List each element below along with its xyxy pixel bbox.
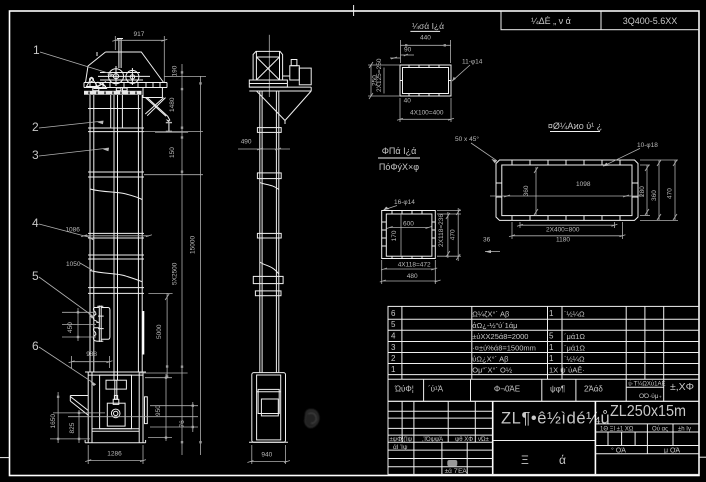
svg-text:±ά 7ΈΆ: ±ά 7ΈΆ (445, 467, 468, 475)
svg-text:1Θ Ξl ±1 ΧΩ: 1Θ Ξl ±1 ΧΩ (600, 427, 634, 433)
svg-text:´½¼Ω: ´½¼Ω (564, 355, 585, 364)
svg-text:440: 440 (420, 35, 431, 42)
svg-text:4X100=400: 4X100=400 (410, 110, 444, 117)
svg-text:ZL250x15m: ZL250x15m (610, 402, 686, 420)
svg-text:1098: 1098 (576, 181, 591, 188)
svg-text:μ ΟΆ: μ ΟΆ (664, 448, 680, 455)
svg-text:2X125=250: 2X125=250 (376, 58, 383, 92)
svg-text:600: 600 (403, 220, 414, 227)
svg-text:50 x 45°: 50 x 45° (455, 135, 479, 143)
svg-text:±,ΧΦ: ±,ΧΦ (670, 381, 694, 393)
svg-text:470: 470 (450, 229, 457, 240)
svg-text:4: 4 (391, 332, 396, 341)
svg-text:825: 825 (69, 422, 76, 433)
svg-text:3Q400-5.6ΧΧ: 3Q400-5.6ΧΧ (623, 16, 678, 26)
svg-text:150: 150 (169, 147, 176, 158)
svg-text:2: 2 (391, 354, 396, 363)
svg-text:¼σά Ι¿ά: ¼σά Ι¿ά (412, 21, 444, 31)
svg-text:1: 1 (549, 354, 554, 363)
svg-text:15000: 15000 (190, 236, 197, 254)
svg-text:5X2500: 5X2500 (172, 262, 179, 285)
svg-text:νΏ±: νΏ± (478, 437, 490, 443)
svg-text:άΙ Ίψ: άΙ Ίψ (393, 443, 408, 451)
svg-text:,ΊΌψψΆ: ,ΊΌψψΆ (422, 437, 443, 443)
svg-text:6: 6 (32, 339, 39, 353)
svg-text:ψφ¶: ψφ¶ (550, 385, 565, 394)
svg-text:Φ¬0ΆΕ: Φ¬0ΆΕ (494, 385, 520, 394)
svg-text:40: 40 (404, 98, 412, 105)
svg-text:ΦΠά Ι¿ά: ΦΠά Ι¿ά (382, 146, 417, 156)
svg-text:917: 917 (134, 31, 145, 38)
svg-text:ΠόΦýΧ×φ: ΠόΦýΧ×φ (379, 162, 419, 172)
svg-text:450: 450 (67, 322, 74, 333)
svg-text:Ομ“´Χ°´ Ο½: Ομ“´Χ°´ Ο½ (472, 366, 513, 375)
svg-text:1086: 1086 (65, 227, 80, 234)
svg-text:1286: 1286 (107, 451, 122, 458)
svg-text:4: 4 (32, 216, 39, 230)
svg-text:±ύΧΧ25ά8=2000: ±ύΧΧ25ά8=2000 (472, 332, 528, 341)
svg-text:10-φ18: 10-φ18 (637, 142, 658, 149)
svg-text:36: 36 (483, 237, 491, 244)
svg-text:470: 470 (667, 188, 674, 199)
svg-text:Ξ: Ξ (521, 453, 529, 467)
svg-text:1Χ ψ´ύΑȆ·: 1Χ ψ´ύΑȆ· (549, 366, 585, 375)
svg-text:940: 940 (261, 452, 272, 459)
svg-text:16-φ14: 16-φ14 (394, 199, 415, 206)
svg-text:280: 280 (639, 186, 646, 197)
svg-text:1: 1 (33, 43, 40, 57)
svg-text:3: 3 (391, 343, 396, 352)
svg-text:ψθ ΧΦ: ψθ ΧΦ (455, 437, 473, 443)
svg-text:´μά1Ω: ´μά1Ω (564, 344, 585, 353)
svg-text:¼ΔĖ „ ν ά: ¼ΔĖ „ ν ά (531, 16, 571, 26)
svg-text:2X400=800: 2X400=800 (546, 227, 580, 234)
svg-text:ZL¶•ê½ìdé¼ů: ZL¶•ê½ìdé¼ů (501, 410, 610, 428)
svg-text:1: 1 (549, 343, 554, 352)
svg-text:360: 360 (651, 190, 658, 201)
svg-text:90: 90 (404, 47, 412, 54)
svg-text:1: 1 (549, 309, 554, 318)
svg-text:5000: 5000 (156, 324, 163, 339)
svg-text:190: 190 (172, 65, 179, 76)
svg-text:1480: 1480 (169, 97, 176, 112)
svg-text:1650: 1650 (50, 414, 57, 429)
svg-text:άΩ¿-½“ύ´1άμ: άΩ¿-½“ύ´1άμ (472, 321, 517, 330)
svg-text:ύ·Τ¼ΩΧύ1ΑȆ: ύ·Τ¼ΩΧύ1ΑȆ (628, 381, 665, 388)
svg-text:2: 2 (32, 120, 39, 134)
svg-text:1180: 1180 (556, 237, 570, 244)
svg-text:3: 3 (32, 148, 39, 162)
svg-text:4X118=472: 4X118=472 (398, 262, 431, 269)
svg-text:±h Ιγ: ±h Ιγ (678, 427, 691, 433)
svg-text:5: 5 (32, 269, 39, 283)
svg-text:±ψΦ¦(Ίψ: ±ψΦ¦(Ίψ (390, 437, 413, 443)
svg-text:ύΩ¿Χ°´ Aβ: ύΩ¿Χ°´ Aβ (472, 355, 509, 364)
svg-text:480: 480 (407, 273, 418, 280)
svg-text:5: 5 (391, 320, 396, 329)
svg-text:´½¼Ω: ´½¼Ω (564, 310, 585, 319)
svg-text:1050: 1050 (66, 261, 81, 268)
svg-text:ΏύΦ¦: ΏύΦ¦ (394, 385, 414, 394)
svg-text:2X118=236: 2X118=236 (438, 214, 445, 247)
svg-text:2Άάδ: 2Άάδ (584, 385, 603, 394)
svg-text:·¤±ύ%ά8=1500mm: ·¤±ύ%ά8=1500mm (472, 344, 536, 353)
svg-text:988: 988 (86, 351, 97, 358)
svg-text:490: 490 (241, 138, 252, 145)
svg-text:° ΟΆ: ° ΟΆ (611, 447, 626, 455)
svg-text:´ύ¹Ά: ´ύ¹Ά (428, 385, 444, 394)
svg-text:170: 170 (391, 230, 398, 241)
svg-text:11-φ14: 11-φ14 (462, 59, 483, 66)
svg-text:¤Ø¼Αϰο ύ¹ ¿: ¤Ø¼Αϰο ύ¹ ¿ (548, 121, 602, 131)
svg-text:Ού ας: Ού ας (652, 427, 668, 433)
svg-text:950: 950 (155, 405, 162, 416)
svg-text:ΟΌ·ύμ₊: ΟΌ·ύμ₊ (639, 392, 663, 400)
svg-text:360: 360 (523, 185, 530, 196)
svg-text:´μά1Ω: ´μά1Ω (564, 332, 585, 341)
svg-text:5: 5 (549, 332, 554, 341)
svg-text:76: 76 (179, 420, 186, 428)
svg-text:1: 1 (391, 365, 396, 374)
svg-text:Ω¼ζΧ°´ Aβ: Ω¼ζΧ°´ Aβ (472, 310, 510, 319)
svg-text:ά: ά (559, 453, 566, 467)
svg-text:6: 6 (391, 309, 396, 318)
